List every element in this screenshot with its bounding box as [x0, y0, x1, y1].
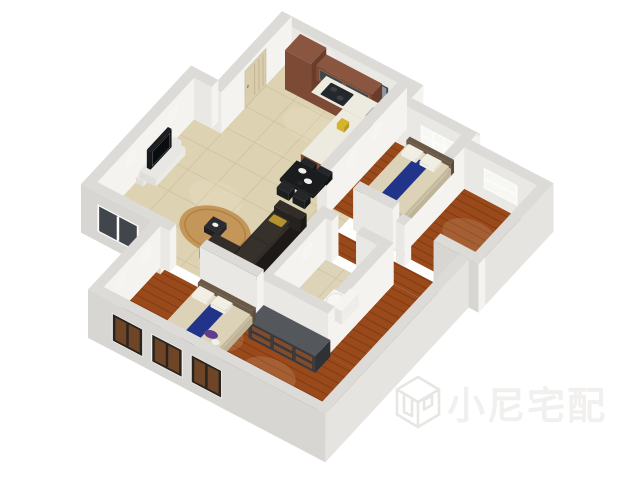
bathroom-north-wall-a-south	[326, 218, 332, 263]
bedroom3-south-wall-east	[325, 407, 332, 463]
bedroom2-south-wall-a-south	[396, 221, 404, 267]
apartment-3d-floorplan: 小尼宅配	[0, 0, 640, 480]
west-jog-wall-east	[212, 80, 219, 129]
bedroom2-south-wall-b-east	[478, 257, 485, 313]
bathroom-north-wall-a-east	[332, 214, 339, 263]
bedroom2-south-wall-a-east	[404, 218, 411, 267]
watermark-text: 小尼宅配	[447, 384, 607, 428]
tv-south	[147, 150, 151, 170]
bedroom3-north-wall-a-south	[160, 226, 169, 272]
floorplan-stage: 小尼宅配	[0, 0, 640, 480]
bedroom3-north-wall-a-east	[170, 223, 177, 272]
